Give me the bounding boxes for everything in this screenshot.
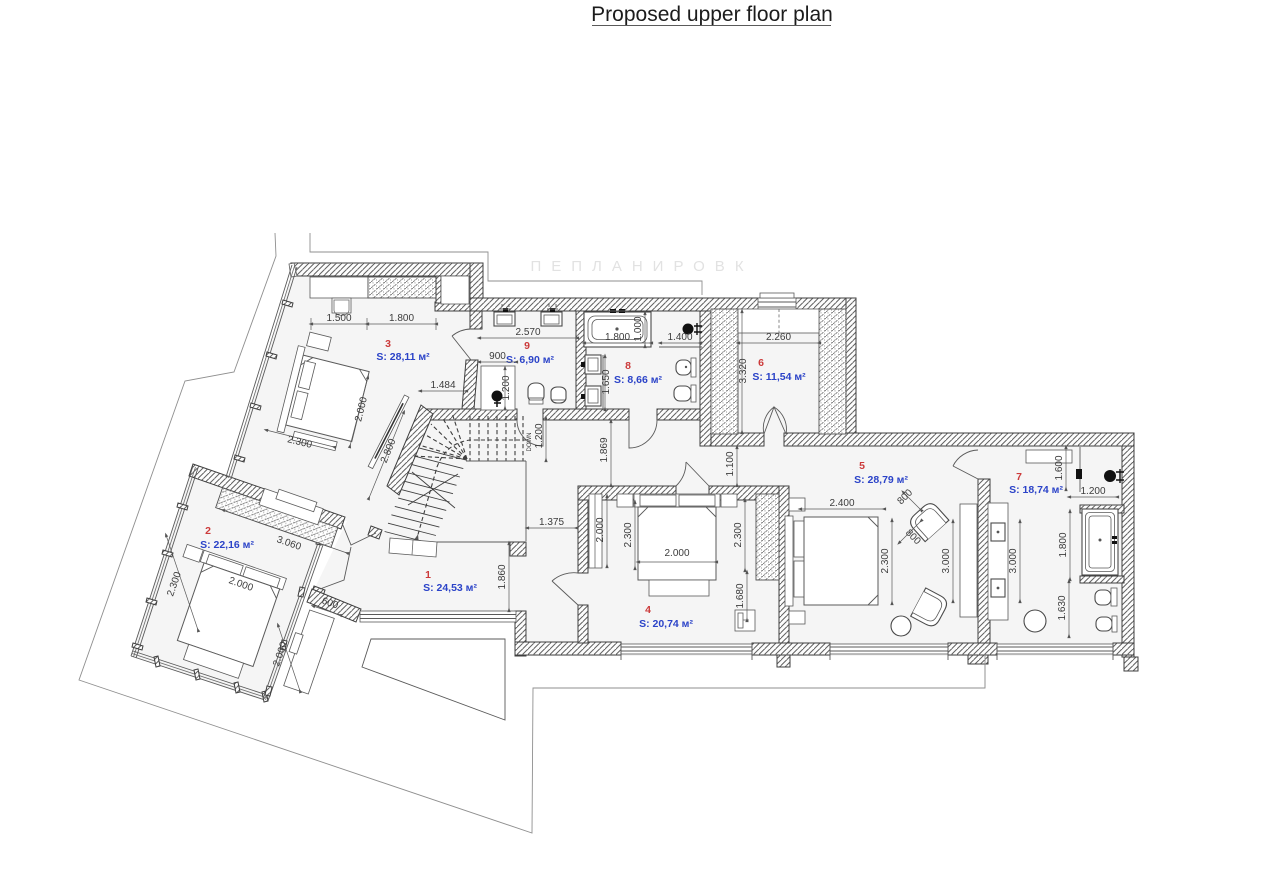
svg-text:S: 8,66 м²: S: 8,66 м² (614, 374, 663, 386)
svg-text:1.630: 1.630 (1057, 595, 1068, 620)
svg-text:2.260: 2.260 (766, 332, 791, 343)
svg-text:1.800: 1.800 (389, 313, 414, 324)
svg-text:2: 2 (205, 525, 211, 537)
svg-text:3: 3 (385, 338, 391, 350)
svg-text:S: 24,53 м²: S: 24,53 м² (423, 582, 477, 594)
svg-text:1.200: 1.200 (1080, 486, 1105, 497)
svg-text:1.400: 1.400 (667, 332, 692, 343)
svg-text:1.484: 1.484 (430, 380, 455, 391)
svg-text:1.600: 1.600 (1054, 455, 1065, 480)
svg-text:3.320: 3.320 (738, 358, 749, 383)
svg-text:2.000: 2.000 (595, 517, 606, 542)
svg-text:S: 6,90 м²: S: 6,90 м² (506, 354, 555, 366)
svg-text:1.650: 1.650 (601, 369, 612, 394)
svg-text:1.800: 1.800 (605, 332, 630, 343)
svg-text:1.000: 1.000 (633, 316, 644, 341)
svg-text:2.300: 2.300 (733, 522, 744, 547)
svg-text:S: 28,11 м²: S: 28,11 м² (376, 351, 430, 363)
svg-text:1.500: 1.500 (326, 313, 351, 324)
svg-text:4: 4 (645, 604, 651, 616)
svg-text:ПЕПЛАНИРОВК: ПЕПЛАНИРОВК (530, 258, 753, 275)
svg-text:2.570: 2.570 (515, 327, 540, 338)
svg-text:2.400: 2.400 (829, 498, 854, 509)
svg-text:S: 28,79 м²: S: 28,79 м² (854, 474, 908, 486)
svg-text:S: 18,74 м²: S: 18,74 м² (1009, 484, 1063, 496)
svg-text:1.680: 1.680 (735, 583, 746, 608)
svg-text:S: 22,16 м²: S: 22,16 м² (200, 539, 254, 551)
svg-text:2.000: 2.000 (664, 548, 689, 559)
svg-text:900: 900 (489, 351, 506, 362)
svg-text:5: 5 (859, 460, 865, 472)
svg-text:3.000: 3.000 (941, 548, 952, 573)
svg-text:2.300: 2.300 (623, 522, 634, 547)
svg-text:1.869: 1.869 (599, 437, 610, 462)
svg-text:1.200: 1.200 (534, 423, 545, 448)
svg-text:1.860: 1.860 (497, 564, 508, 589)
svg-text:DOWN: DOWN (527, 433, 533, 452)
svg-text:1.200: 1.200 (501, 375, 512, 400)
svg-text:S: 20,74 м²: S: 20,74 м² (639, 618, 693, 630)
svg-text:Proposed upper floor plan: Proposed upper floor plan (591, 3, 833, 26)
svg-text:1: 1 (425, 569, 431, 581)
svg-text:8: 8 (625, 360, 631, 372)
svg-text:1.800: 1.800 (1058, 532, 1069, 557)
svg-text:9: 9 (524, 340, 530, 352)
svg-text:1.100: 1.100 (725, 451, 736, 476)
svg-text:7: 7 (1016, 471, 1022, 483)
svg-text:2.300: 2.300 (880, 548, 891, 573)
svg-text:6: 6 (758, 357, 764, 369)
svg-text:S: 11,54 м²: S: 11,54 м² (752, 371, 806, 383)
svg-text:1.375: 1.375 (539, 517, 564, 528)
svg-text:3.000: 3.000 (1008, 548, 1019, 573)
